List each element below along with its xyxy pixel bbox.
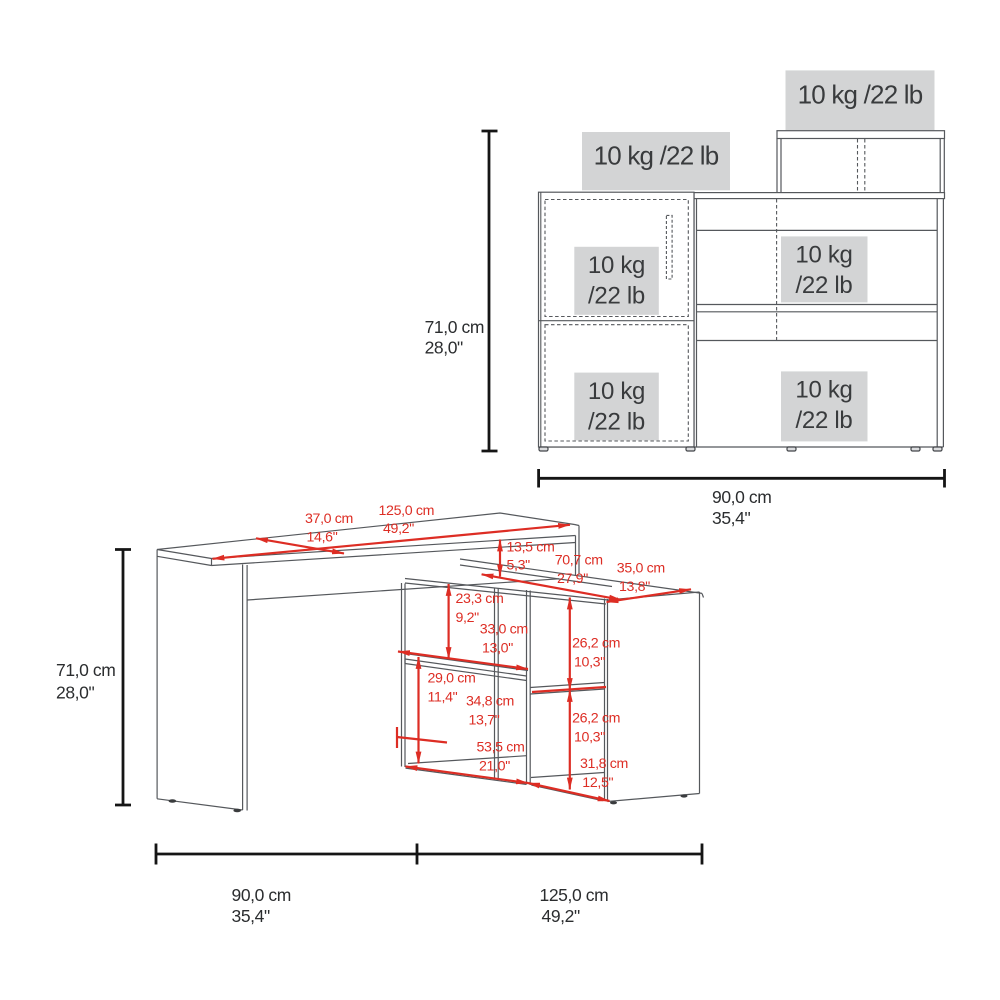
svg-text:/22 lb: /22 lb	[796, 407, 853, 434]
svg-text:35,4": 35,4"	[712, 508, 750, 528]
svg-text:13,7": 13,7"	[469, 713, 500, 729]
svg-text:49,2": 49,2"	[383, 521, 414, 537]
svg-text:10 kg: 10 kg	[795, 242, 852, 269]
svg-text:5,3": 5,3"	[507, 558, 531, 574]
svg-text:28,0": 28,0"	[56, 683, 94, 703]
svg-text:14,6": 14,6"	[307, 530, 338, 546]
svg-text:70,7 cm: 70,7 cm	[555, 553, 603, 569]
svg-text:90,0 cm: 90,0 cm	[232, 885, 291, 905]
svg-text:28,0": 28,0"	[425, 338, 463, 358]
svg-text:10 kg: 10 kg	[588, 252, 645, 279]
svg-text:10 kg /22 lb: 10 kg /22 lb	[594, 141, 719, 171]
svg-text:37,0 cm: 37,0 cm	[305, 511, 353, 527]
svg-text:26,2 cm: 26,2 cm	[572, 636, 620, 652]
svg-text:/22 lb: /22 lb	[588, 408, 645, 435]
svg-text:90,0 cm: 90,0 cm	[712, 487, 771, 507]
svg-text:10 kg: 10 kg	[588, 378, 645, 405]
svg-text:10,3": 10,3"	[574, 655, 605, 671]
svg-text:29,0 cm: 29,0 cm	[428, 671, 476, 687]
svg-text:27,9": 27,9"	[557, 571, 588, 587]
svg-text:34,8 cm: 34,8 cm	[466, 694, 514, 710]
svg-text:31,8 cm: 31,8 cm	[580, 756, 628, 772]
svg-text:23,3 cm: 23,3 cm	[456, 591, 504, 607]
svg-text:49,2": 49,2"	[542, 906, 580, 926]
svg-text:10,3": 10,3"	[574, 730, 605, 746]
svg-text:/22 lb: /22 lb	[796, 272, 853, 299]
svg-text:13,8": 13,8"	[619, 579, 650, 595]
svg-text:125,0 cm: 125,0 cm	[540, 885, 609, 905]
svg-text:13,5 cm: 13,5 cm	[507, 540, 555, 556]
svg-text:33,0 cm: 33,0 cm	[480, 622, 528, 638]
svg-text:71,0 cm: 71,0 cm	[425, 317, 484, 337]
svg-text:71,0 cm: 71,0 cm	[56, 660, 115, 680]
svg-text:125,0 cm: 125,0 cm	[379, 503, 435, 519]
svg-text:53,5 cm: 53,5 cm	[477, 740, 525, 756]
svg-text:/22 lb: /22 lb	[588, 283, 645, 310]
svg-text:10 kg /22 lb: 10 kg /22 lb	[798, 79, 923, 109]
svg-text:26,2 cm: 26,2 cm	[572, 711, 620, 727]
svg-text:9,2": 9,2"	[456, 610, 480, 626]
svg-text:35,0 cm: 35,0 cm	[617, 561, 665, 577]
svg-text:35,4": 35,4"	[232, 906, 270, 926]
svg-text:21,0": 21,0"	[479, 759, 510, 775]
svg-text:13,0": 13,0"	[482, 641, 513, 657]
svg-text:12,5": 12,5"	[582, 775, 613, 791]
svg-text:11,4": 11,4"	[428, 690, 458, 706]
svg-text:10 kg: 10 kg	[795, 377, 852, 404]
